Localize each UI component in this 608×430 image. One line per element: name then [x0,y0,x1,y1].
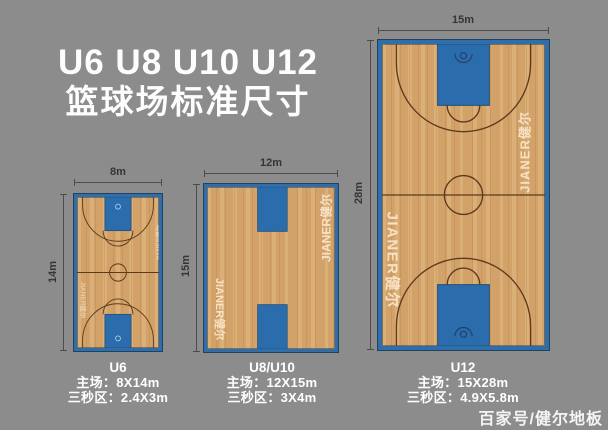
u8u10-watermark-right: JIANER健尔 [318,194,335,262]
u8u10-top-key-area [258,187,288,231]
u6-caption: U6 主场：8X14m 三秒区：2.4X3m [38,360,198,405]
u6-width-dimension-label: 8m [110,166,126,178]
title-age-groups: U6 U8 U10 U12 [10,44,366,82]
page-title: U6 U8 U10 U12 篮球场标准尺寸 [10,44,366,120]
u12-caption: U12 主场：15X28m 三秒区：4.9X5.8m [383,360,543,405]
u12-court-diagram: JIANER健尔 JIANER健尔 [378,40,549,350]
u12-width-dimension-line [378,27,549,34]
credit-watermark: 百家号/健尔地板 [479,405,603,429]
u12-height-dimension-line [367,40,374,350]
u6-court-markings [77,197,159,348]
u12-height-dimension-label: 28m [353,182,365,204]
u8u10-height-dimension-line [193,184,200,352]
infographic-canvas: U6 U8 U10 U12 篮球场标准尺寸 8m 14m JIANER健尔 JI… [0,0,608,430]
u8u10-height-dimension-label: 15m [180,255,192,277]
u6-bottom-free-throw-arc [103,299,133,314]
u12-top-free-throw-arc [447,105,480,122]
u12-top-key-area [438,44,490,105]
u6-watermark-left: JIANER健尔 [79,282,89,319]
u6-caption-court-size: 主场：8X14m [38,375,198,390]
u6-caption-key-size: 三秒区：2.4X3m [38,390,198,405]
u12-caption-key-size: 三秒区：4.9X5.8m [383,390,543,405]
u12-watermark-right: JIANER健尔 [515,111,534,193]
u6-bottom-key-area [105,314,131,348]
u8u10-width-dimension-line [204,170,338,177]
u12-caption-title: U12 [383,360,543,375]
u12-court-markings [382,44,545,346]
u6-top-free-throw-arc [103,231,133,246]
u8u10-court-diagram: JIANER健尔 JIANER健尔 [204,184,338,352]
title-subtitle: 篮球场标准尺寸 [10,84,366,120]
u8u10-caption-title: U8/U10 [192,360,352,375]
u6-court-diagram: JIANER健尔 JIANER健尔 [74,194,162,351]
u12-width-dimension-label: 15m [452,14,474,26]
u8u10-caption-court-size: 主场：12X15m [192,375,352,390]
u8u10-watermark-left: JIANER健尔 [212,278,228,340]
u12-bottom-key-area [438,285,490,346]
u6-height-dimension-line [60,194,67,351]
u8u10-caption: U8/U10 主场：12X15m 三秒区：3X4m [192,360,352,405]
u12-bottom-free-throw-arc [447,268,480,285]
u6-caption-title: U6 [38,360,198,375]
u6-watermark-right: JIANER健尔 [153,225,162,262]
u6-height-dimension-label: 14m [47,261,59,283]
u12-caption-court-size: 主场：15X28m [383,375,543,390]
u12-watermark-left: JIANER健尔 [383,211,404,308]
u6-width-dimension-line [74,179,162,186]
u8u10-caption-key-size: 三秒区：3X4m [192,390,352,405]
u8u10-bottom-key-area [258,305,288,349]
u6-top-key-area [105,197,131,231]
u8u10-width-dimension-label: 12m [260,157,282,169]
